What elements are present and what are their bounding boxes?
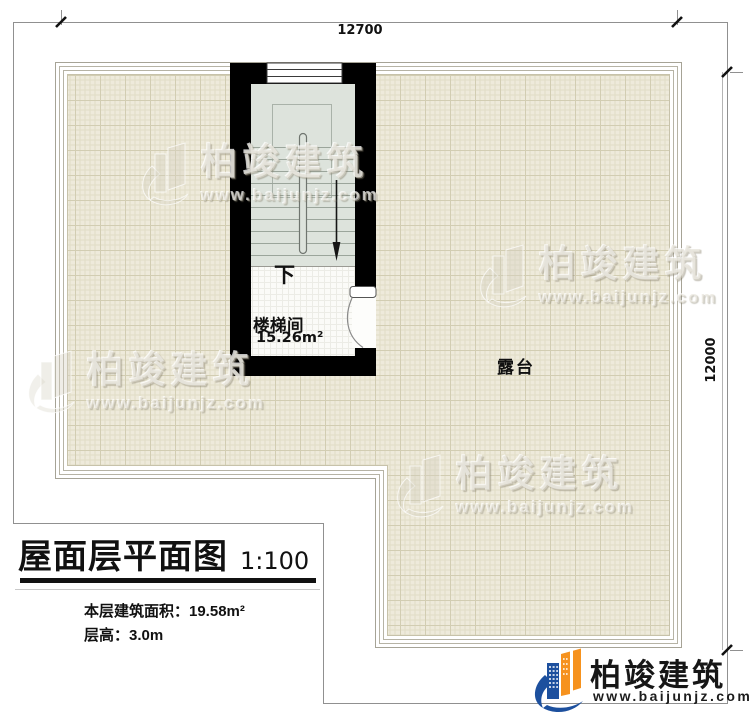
stairwell-area-label: 15.26m² [256, 330, 323, 346]
stair-direction-label: 下 [274, 259, 295, 289]
page-title: 屋面层平面图 [18, 537, 228, 578]
dimension-top-label: 12700 [300, 23, 420, 38]
floor-area-text: 本层建筑面积：19.58m² [84, 600, 245, 621]
title-underline [20, 578, 316, 583]
company-logo-icon [529, 645, 589, 713]
title-block: 屋面层平面图 1:100 [18, 537, 309, 578]
company-logo-url: www.baijunjz.com [593, 688, 750, 704]
dimension-right-label: 12000 [704, 300, 720, 420]
stair-window [267, 63, 342, 83]
terrace-label: 露台 [497, 353, 535, 378]
drawing-scale: 1:100 [240, 545, 309, 577]
floor-height-text: 层高：3.0m [84, 624, 163, 645]
stair-center-rail [300, 134, 307, 254]
title-underline-thin [15, 589, 320, 590]
floor-plan-sheet: 柏竣建筑 www.baijunjz.com 柏竣建筑 www.baijunjz.… [0, 0, 750, 720]
